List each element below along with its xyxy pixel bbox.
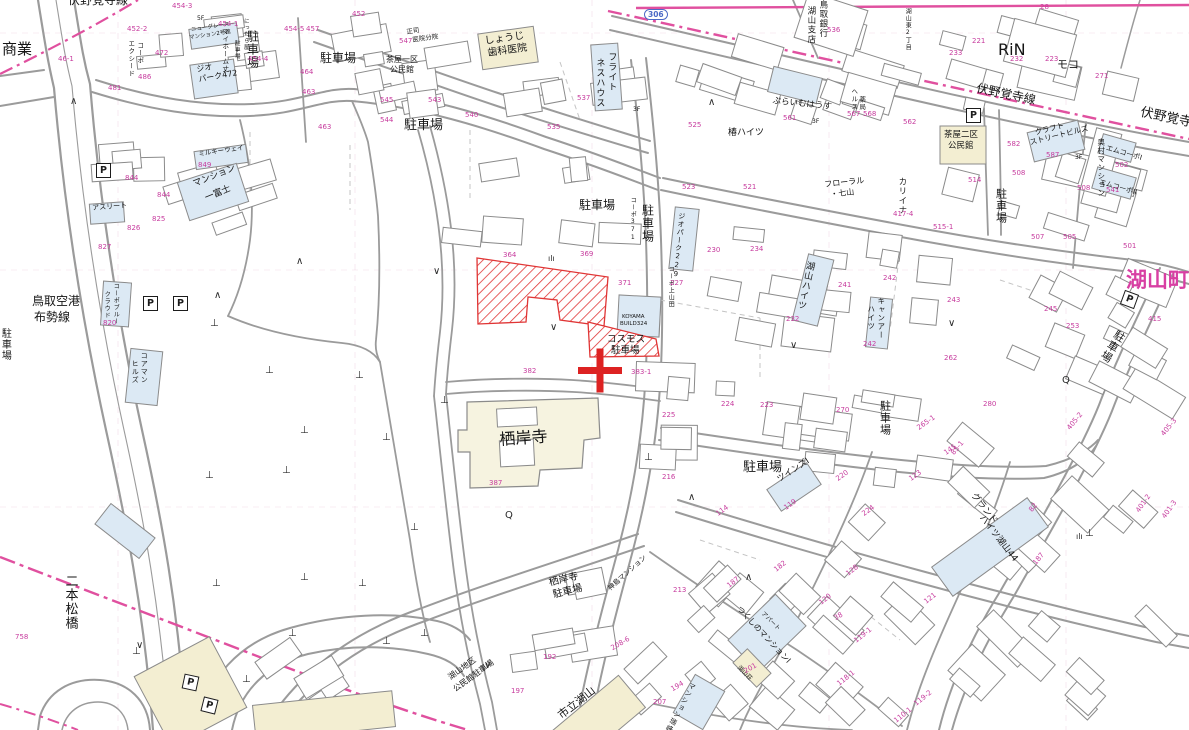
place-label: エクシード [127,40,134,78]
place-label: 公民館 [948,142,974,151]
lot-number: 544 [380,117,393,124]
lot-number: 454-3 [172,3,192,10]
place-label: 商業 [2,42,32,58]
lot-number: 587 [1046,152,1059,159]
place-label: クラウド [103,291,109,319]
parking-icon: P [143,296,158,311]
grassland-symbol: ⊥ [382,432,391,443]
place-label: ヘルス [850,88,857,111]
lot-number: 401-3 [1161,499,1179,520]
lot-number: 387 [489,480,502,487]
lot-number: 280 [983,401,996,408]
map-canvas[interactable]: 商業伏野覚寺線駐車場マイホーム丈駐車場コーポエクシードにったら屋ニューグレースマ… [0,0,1189,730]
place-label: キャンアー [877,297,885,340]
place-label: ハイツ [867,305,875,331]
lot-number: 507 [1031,234,1044,241]
field-symbol: ılı [548,254,555,263]
lot-number: 844 [157,192,170,199]
lot-number: 46-1 [58,56,74,63]
lot-number: 242 [883,275,896,282]
place-label: 薬局 [858,96,865,111]
lot-number: 457 [306,26,319,33]
place-label: 駐車場 [404,119,443,133]
lot-number: 514 [968,177,981,184]
grassland-symbol: ⊥ [355,370,364,381]
place-label: 駐車場 [233,40,239,60]
grassland-symbol: ⊥ [212,578,221,589]
tree-symbol: ∧ [708,97,715,108]
lot-number: 197 [511,688,524,695]
lot-number: 224 [861,504,876,518]
grassland-symbol: ⊥ [300,425,309,436]
lot-number: 121 [923,592,938,606]
entrance-symbol: ∨ [433,266,440,277]
lot-number: 415 [1148,316,1161,323]
place-label: エムコーポI [1105,145,1143,162]
place-label: コアマン [140,352,147,384]
lot-number: 452 [352,11,365,18]
place-label: 駐車場 [1098,328,1127,365]
entrance-symbol: ∨ [550,322,557,333]
lot-number: 265-1 [916,414,937,432]
parking-icon: P [1120,290,1139,309]
lot-number: 192 [543,654,556,661]
grassland-symbol: ⊥ [644,452,653,463]
place-label: アスリート [92,203,127,213]
lot-number: 208-6 [610,636,631,652]
lot-number: 383-1 [631,369,651,376]
grassland-symbol: ⊥ [205,470,214,481]
grassland-symbol: ⊥ [210,318,219,329]
place-label: 鳥取空港 [32,295,80,307]
lot-number: 232 [786,316,799,323]
lot-number: 270 [836,407,849,414]
entrance-symbol: ∨ [484,660,491,671]
parking-icon: P [173,296,188,311]
place-label: 伏野覚寺線 [1139,106,1189,133]
lot-number: 505 [1063,234,1076,241]
lot-number: 827 [98,244,111,251]
place-label: 3F [1075,155,1082,161]
lot-number: 194 [670,680,685,693]
lot-number: 213 [673,587,686,594]
place-label: コーポ [136,42,143,65]
grassland-symbol: ⊥ [382,636,391,647]
place-label: 奥村マンション [1097,138,1105,198]
lot-number: 541 [1106,187,1119,194]
lot-number: 230 [707,247,720,254]
place-label: 茶屋一区 [386,56,418,64]
lot-number: 187 [1032,552,1046,567]
lot-number: 271 [1095,73,1108,80]
lot-number: 401-2 [1135,493,1153,514]
lot-number: 464 [300,69,313,76]
grassland-symbol: ⊥ [265,365,274,376]
lot-number: 119-2 [913,689,934,707]
lot-number: 537 [577,95,590,102]
lot-number: 114 [715,504,730,518]
place-label: 湖山支店 [806,6,815,44]
place-label: ・七山 [830,188,855,199]
place-label: 3F [633,107,640,113]
lot-number: 826 [127,225,140,232]
place-label: ヒルズ [131,360,138,384]
lot-number: 536 [827,27,840,34]
grassland-symbol: ⊥ [358,578,367,589]
lot-number: 562 [903,119,916,126]
lot-number: 535 [547,124,560,131]
place-label: 鳥取銀行 [818,0,827,38]
lot-number: 245 [1044,306,1057,313]
lot-number: 417-4 [893,211,913,218]
parking-icon: P [200,696,218,714]
parking-icon: P [96,163,111,178]
lot-number: 481 [108,85,121,92]
lot-number: 220 [835,469,850,483]
place-label: 3F [812,119,819,125]
place-label: 椿ハイツ [728,129,764,138]
lot-number: 567 [847,111,860,118]
place-label: 神島マンション [607,554,648,592]
lot-number: 262 [944,355,957,362]
lot-number: 82 [1028,502,1039,514]
lot-number: 223 [1045,56,1058,63]
lot-number: 844 [125,175,138,182]
place-label: 駐車場 [879,400,890,436]
lot-number: 224 [721,401,734,408]
lot-number: 501 [1123,243,1136,250]
grassland-symbol: ⊥ [288,628,297,639]
place-label: ハイツ湖山44 [977,514,1019,564]
place-label: 公民館 [390,66,414,74]
well-symbol: Q [505,510,513,521]
lot-number: 110-1 [893,706,914,724]
lot-number: 543 [428,97,441,104]
lot-number: 758 [15,634,28,641]
lot-number: 463 [302,89,315,96]
entrance-symbol: ∨ [136,640,143,651]
lot-number: 182 [773,560,788,574]
lot-number: 508 [1077,185,1090,192]
lot-number: 452-2 [127,26,147,33]
lot-number: 820 [103,320,116,327]
place-label: 駐車場 [579,199,615,211]
place-label: 駐車場 [743,461,782,475]
lot-number: 454-1 [218,21,238,28]
lot-number: 369 [580,251,593,258]
place-label: フライト [606,52,615,92]
lot-number: 38 [833,612,844,623]
well-symbol: Q [1062,375,1070,386]
place-label: BUILD324 [620,322,647,328]
place-label: 駐車場 [641,204,653,243]
place-label: 湖山東2丁目 [904,8,910,51]
lot-number: 515-1 [933,224,953,231]
place-label: 駐車場 [995,188,1006,224]
lot-number: 523 [682,184,695,191]
lot-number: 225 [662,412,675,419]
district-label: 湖山町 [1126,270,1189,292]
lot-number: 221 [972,38,985,45]
place-label: 伏野覚寺線 [68,0,128,6]
lot-number: 216 [662,474,675,481]
lot-number: 234 [750,246,763,253]
lot-number: 463 [318,124,331,131]
lot-number: 371 [618,280,631,287]
place-label: 一富士 [204,185,233,204]
lot-number: 241 [838,282,851,289]
place-label: 駐車場 [611,346,640,356]
place-label: KOYAMA [622,315,645,321]
lot-number: 561 [783,115,796,122]
lot-number: 525 [688,122,701,129]
lot-number: 547 [399,38,412,45]
tree-symbol: ∧ [70,96,77,107]
lot-number: 540 [465,112,478,119]
route-number-badge: 306 [644,9,668,20]
grassland-symbol: ⊥ [1085,528,1094,539]
place-label: モコ [1057,59,1079,70]
place-label: ミルキーウェイ [198,145,244,158]
lot-number: 502 [1115,162,1128,169]
place-label: 茶屋二区 [944,131,978,140]
lot-number: 223 [760,402,773,409]
lot-number: 28 [1040,4,1049,11]
lot-number: 364 [503,252,516,259]
grassland-symbol: ⊥ [410,522,419,533]
place-label: 駐車場 [0,328,9,361]
lot-number: 472 [155,50,168,57]
lot-number: 119 [783,498,798,512]
place-label: ネスハウス [594,58,603,108]
lot-number: 405-2 [1066,411,1085,431]
entrance-symbol: ∨ [790,340,797,351]
lot-number: 123 [908,469,923,483]
lot-number: 243 [947,297,960,304]
lot-number: 128 [845,564,860,578]
tree-symbol: ∧ [214,290,221,301]
grassland-symbol: ⊥ [242,674,251,685]
lot-number: 568 [863,111,876,118]
tree-symbol: ∧ [745,572,752,583]
grassland-symbol: ⊥ [300,572,309,583]
place-label: 湖山ハイツ [795,260,815,311]
lot-number: 454-5 [284,26,304,33]
lot-number: 253 [1066,323,1079,330]
lot-number: 454-4 [248,56,268,63]
place-label: 医院分院 [412,33,439,43]
place-label: 駐車場 [320,52,356,64]
grassland-symbol: ⊥ [282,465,291,476]
lot-number: 825 [152,216,165,223]
lot-number: 849 [198,162,211,169]
lot-number: 233 [949,50,962,57]
lot-number: 382 [523,368,536,375]
place-label: コーポ371 [629,197,635,242]
map-labels-layer: 商業伏野覚寺線駐車場マイホーム丈駐車場コーポエクシードにったら屋ニューグレースマ… [0,0,1189,730]
lot-number: 521 [743,184,756,191]
lot-number: 120 [818,593,833,607]
grassland-symbol: ⊥ [420,628,429,639]
lot-number: 486 [138,74,151,81]
lot-number: 187 [726,576,741,590]
parking-icon: P [182,674,200,692]
lot-number: 119-1 [853,626,874,644]
grassland-symbol: ⊥ [440,395,449,406]
place-label: 栖岸寺 [499,429,548,449]
place-label: 伏野覚寺線 [975,82,1036,107]
place-label: にったら屋 [242,18,248,51]
tree-symbol: ∧ [688,492,695,503]
field-symbol: ılı [1076,532,1083,541]
lot-number: 242 [863,341,876,348]
tree-symbol: ∧ [296,256,303,267]
parking-icon: P [966,108,981,123]
lot-number: 508 [1012,170,1025,177]
place-label: 布勢線 [34,311,70,323]
place-label: ぷらいむはうす [772,97,832,112]
place-label: 二本松橋 [63,574,77,630]
lot-number: 227 [670,280,683,287]
lot-number: 545 [380,97,393,104]
place-label: 5F [197,16,204,22]
lot-number: 582 [1007,141,1020,148]
entrance-symbol: ∨ [948,318,955,329]
place-label: コスモス [607,335,645,345]
lot-number: 405-3 [1160,417,1179,437]
lot-number: 118-1 [836,669,857,687]
place-label: 市立湖山 [556,685,598,721]
lot-number: 232 [1010,56,1023,63]
lot-number: 207 [653,699,666,706]
